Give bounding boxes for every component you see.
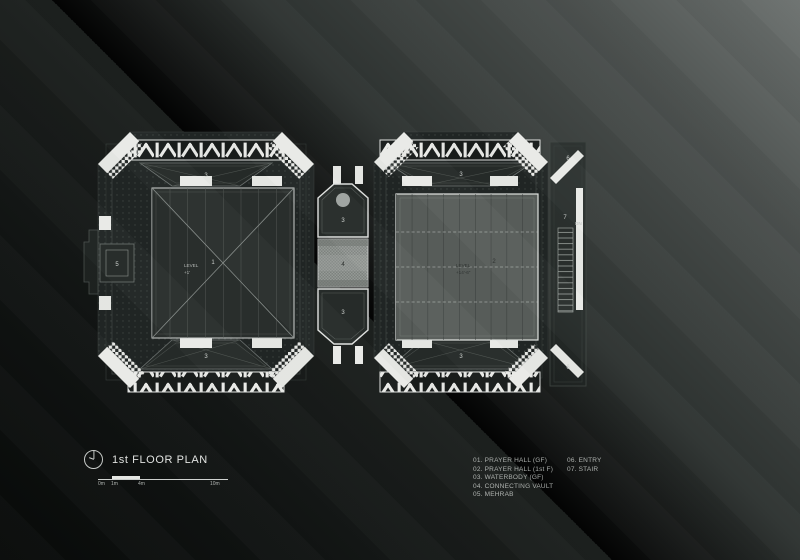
entry-stair-strip — [550, 142, 586, 386]
north-arrow-icon — [84, 450, 103, 469]
legend-item: 04. CONNECTING VAULT — [473, 483, 553, 492]
scale-label-4m: 4m — [138, 481, 145, 487]
fountain-icon — [336, 193, 350, 207]
connector-top-waterbody — [318, 184, 368, 237]
right-prayer-hall-block — [374, 132, 548, 392]
scale-bar-fill — [112, 476, 140, 479]
label-level-left-1: LEVEL — [184, 263, 199, 268]
legend-item: 07. STAIR — [567, 466, 602, 475]
label-level-right-1: LEVEL — [456, 263, 471, 268]
left-hall-top-frieze — [128, 140, 284, 160]
stair-run — [558, 228, 573, 312]
legend-item: 01. PRAYER HALL (GF) — [473, 457, 553, 466]
legend-item: 05. MEHRAB — [473, 491, 553, 500]
left-hall-floor — [152, 188, 294, 338]
legend-column-2: 06. ENTRY 07. STAIR — [567, 457, 602, 474]
legend-column-1: 01. PRAYER HALL (GF) 02. PRAYER HALL (1s… — [473, 457, 553, 500]
page-title: 1st FLOOR PLAN — [112, 454, 208, 466]
legend-item: 03. WATERBODY (GF) — [473, 474, 553, 483]
page-background: 3 3 1 LEVEL +1' 5 3 4 3 3 3 2 LEVEL +14'… — [0, 0, 800, 560]
label-level-left-2: +1' — [184, 270, 190, 275]
label-down: DN — [575, 221, 582, 226]
label-level-right-2: +14'-6" — [456, 270, 471, 275]
scale-bar: 0m 1m 4m 10m — [98, 476, 228, 488]
title-block: 1st FLOOR PLAN — [84, 450, 208, 469]
left-hall-bottom-frieze — [128, 372, 284, 392]
scale-label-0m: 0m — [98, 481, 105, 487]
legend-item: 06. ENTRY — [567, 457, 602, 466]
connector-bottom-waterbody — [318, 289, 368, 344]
scale-label-1m: 1m — [111, 481, 118, 487]
legend-item: 02. PRAYER HALL (1st F) — [473, 466, 553, 475]
scale-label-10m: 10m — [210, 481, 220, 487]
